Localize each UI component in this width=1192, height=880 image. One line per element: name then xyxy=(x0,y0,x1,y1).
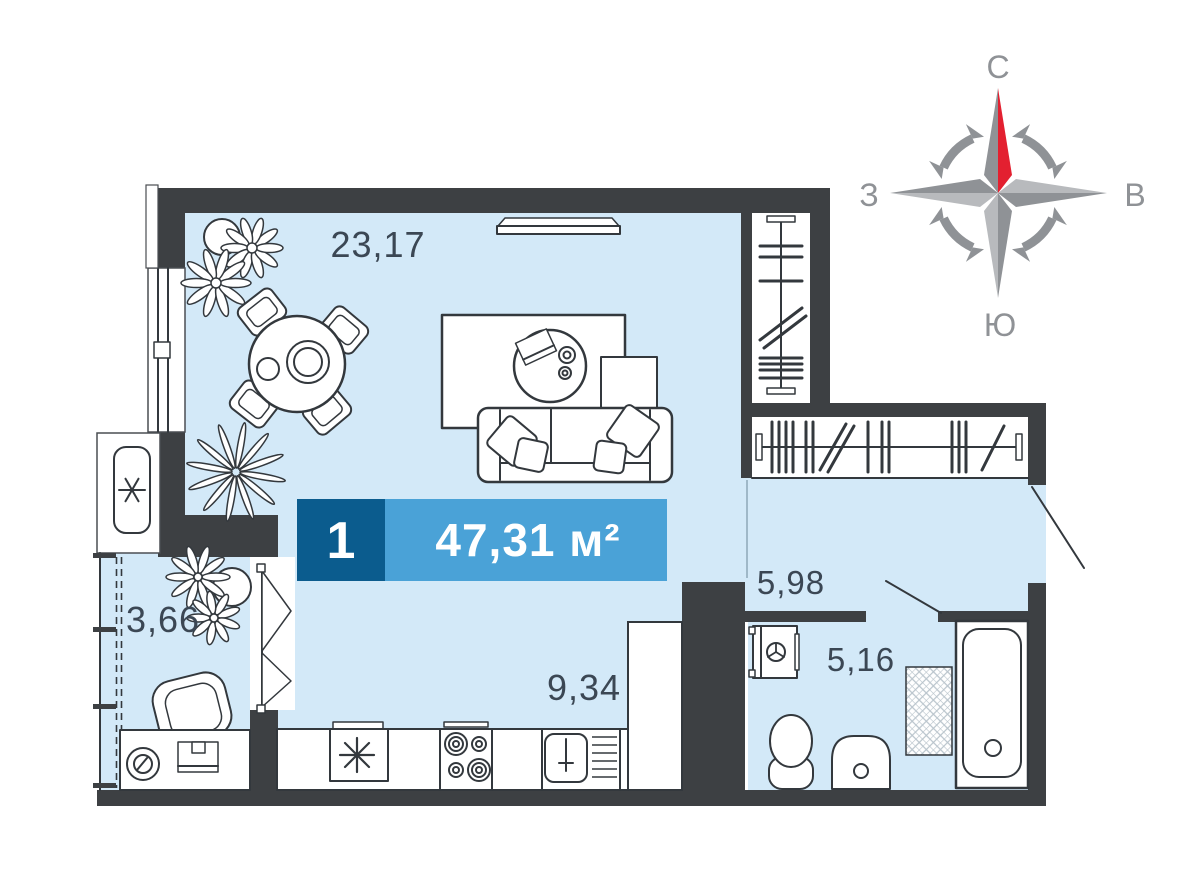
badge-room-count: 1 xyxy=(327,512,356,570)
railing-tick xyxy=(93,553,116,558)
compass-south-label: Ю xyxy=(984,307,1016,343)
compass-rose-icon: С В Ю З xyxy=(859,49,1145,343)
bathroom-doorway-fill xyxy=(866,611,938,622)
compass-north-label: С xyxy=(986,49,1009,85)
bath-mat xyxy=(906,667,952,755)
washer-door-edge xyxy=(795,634,799,670)
compass-east-label: В xyxy=(1124,177,1145,213)
flower-center xyxy=(210,614,218,622)
window-mullion xyxy=(154,342,170,358)
bathtub xyxy=(956,621,1028,788)
flower-center xyxy=(211,278,221,288)
balcony-door xyxy=(250,557,295,713)
facade-ledge xyxy=(146,185,158,268)
rail-cap xyxy=(1016,434,1022,460)
hallway-closet xyxy=(752,417,1028,478)
petal xyxy=(202,573,230,581)
rail-cap xyxy=(756,434,762,460)
pillow xyxy=(593,440,627,474)
wall-wardrobe-right xyxy=(810,213,830,403)
toilet-bowl xyxy=(770,715,812,767)
wall-top xyxy=(158,188,830,213)
washer-foot xyxy=(749,670,755,677)
rail-cap xyxy=(767,388,795,394)
east-point-top xyxy=(998,179,1107,193)
bathtub-outer xyxy=(956,621,1028,788)
fridge xyxy=(330,722,388,781)
door-hinge xyxy=(257,564,265,572)
rail-cap xyxy=(767,216,795,222)
compass-star xyxy=(890,88,1107,298)
wall-left-mid xyxy=(158,432,185,515)
wall-right-upper xyxy=(1028,417,1046,485)
bathroom-sink xyxy=(832,736,890,789)
floor-plan-svg: 1 47,31 м² 23,17 3,66 9,34 5,98 5,16 xyxy=(0,0,1192,880)
east-point-bottom xyxy=(998,193,1107,207)
petal xyxy=(256,244,283,253)
exterior-shaft xyxy=(97,433,160,553)
railing-tick xyxy=(93,627,116,632)
wall-bottom xyxy=(97,790,1046,806)
wardrobe-vertical xyxy=(752,213,810,403)
door-hinge xyxy=(257,705,265,713)
compass-west-label: З xyxy=(859,177,878,213)
floor-plan-page: 1 47,31 м² 23,17 3,66 9,34 5,98 5,16 xyxy=(0,0,1192,880)
label-bathroom-area: 5,16 xyxy=(827,641,895,678)
flower-center xyxy=(247,243,257,253)
washer-foot xyxy=(749,627,755,634)
label-kitchen-area: 9,34 xyxy=(547,667,621,708)
west-point-top xyxy=(890,179,998,193)
west-point-bottom xyxy=(890,193,998,207)
pillow-shape xyxy=(513,437,549,473)
snowflake-icon xyxy=(340,738,374,772)
north-point-red xyxy=(998,88,1012,193)
label-hallway-area: 5,98 xyxy=(757,564,825,601)
stove-handle xyxy=(444,722,488,727)
railing-tick xyxy=(93,783,116,788)
unit-badge: 1 47,31 м² xyxy=(297,499,667,581)
wall-wardrobe-left xyxy=(741,213,752,478)
south-point-right xyxy=(998,193,1012,298)
north-point-left xyxy=(984,88,998,193)
tv-screen xyxy=(498,218,619,226)
stove xyxy=(440,722,492,790)
wall-kitchen-bathroom xyxy=(682,582,745,790)
badge-area-value: 47,31 м² xyxy=(435,514,620,566)
flower-center xyxy=(194,573,202,581)
washing-machine xyxy=(749,626,799,678)
box-tab xyxy=(192,742,205,753)
sink-body xyxy=(832,736,890,789)
kitchen-duct xyxy=(628,622,682,790)
toilet xyxy=(769,715,813,789)
tv-stand xyxy=(497,226,620,234)
pillow-shape xyxy=(593,440,627,474)
wall-closet-top xyxy=(741,403,1046,417)
label-living-area: 23,17 xyxy=(330,224,425,265)
wall-living-balcony xyxy=(158,515,278,557)
wall-bathroom-top-left xyxy=(740,611,866,622)
petal xyxy=(220,279,251,288)
label-balcony-area: 3,66 xyxy=(126,599,200,640)
railing-tick xyxy=(93,704,116,709)
fridge-door xyxy=(333,722,383,729)
dining-table xyxy=(249,316,345,412)
south-point-left xyxy=(984,193,998,298)
wall-balcony-kitchen xyxy=(250,707,278,790)
pillow xyxy=(513,437,549,473)
wall-left-upper xyxy=(158,188,185,268)
